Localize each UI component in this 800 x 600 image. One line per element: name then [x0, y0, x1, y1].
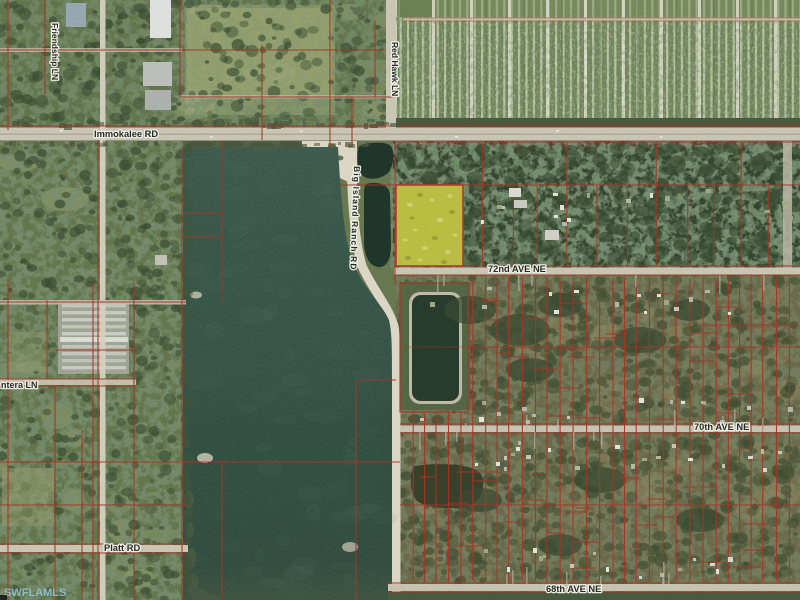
svg-text:SWFLAMLS: SWFLAMLS	[4, 587, 66, 599]
